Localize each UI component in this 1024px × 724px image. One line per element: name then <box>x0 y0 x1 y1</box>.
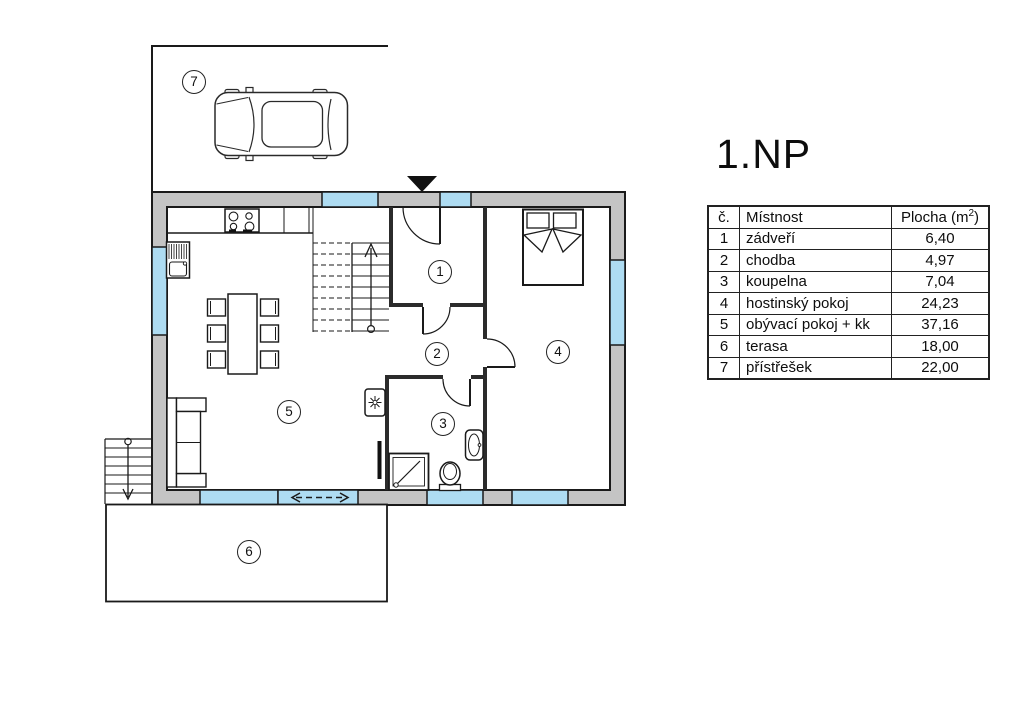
legend-header-row: č. Místnost Plocha (m2) <box>708 206 989 228</box>
cell-room: terasa <box>740 336 892 358</box>
cell-room: koupelna <box>740 271 892 293</box>
table-row: 2 chodba 4,97 <box>708 250 989 272</box>
car-top-view <box>215 88 348 161</box>
cooktop <box>225 209 259 232</box>
window-top-kitchen <box>322 192 378 207</box>
header-area: Plocha (m2) <box>892 206 990 228</box>
pillow <box>554 213 577 228</box>
table-row: 6 terasa 18,00 <box>708 336 989 358</box>
bed <box>523 210 583 286</box>
cell-number: 5 <box>708 314 740 336</box>
window-bottom-bath <box>427 490 483 505</box>
window-bottom-fixed <box>200 490 278 505</box>
entrance-door <box>403 207 440 244</box>
guestroom-door <box>487 339 515 367</box>
cell-room: přístřešek <box>740 357 892 379</box>
stairs-down-arrow <box>123 438 133 499</box>
entrance-marker-icon <box>407 176 437 192</box>
cell-number: 4 <box>708 293 740 315</box>
table-row: 4 hostinský pokoj 24,23 <box>708 293 989 315</box>
staircase <box>313 207 389 332</box>
room-marker-3: 3 <box>431 412 455 436</box>
table-row: 3 koupelna 7,04 <box>708 271 989 293</box>
cell-room: obývací pokoj + kk <box>740 314 892 336</box>
cell-area: 18,00 <box>892 336 990 358</box>
room-marker-2: 2 <box>425 342 449 366</box>
window-right <box>610 260 625 345</box>
table-row: 5 obývací pokoj + kk 37,16 <box>708 314 989 336</box>
shower <box>389 454 429 491</box>
stairs-up-arrow <box>365 244 377 332</box>
cell-area: 4,97 <box>892 250 990 272</box>
cell-area: 6,40 <box>892 228 990 250</box>
window-top-entry <box>440 192 471 207</box>
cell-area: 24,23 <box>892 293 990 315</box>
cell-area: 7,04 <box>892 271 990 293</box>
kitchen-sink <box>167 242 190 278</box>
hallway-door <box>423 307 450 334</box>
cell-room: chodba <box>740 250 892 272</box>
dining-table <box>228 294 257 374</box>
floor-plan-page: 1 2 3 4 5 6 7 1.NP č. Místnost Plocha (m… <box>0 0 1024 724</box>
window-bottom-guestroom <box>512 490 568 505</box>
bathroom-door <box>443 379 470 406</box>
washbasin <box>466 430 484 460</box>
floor-title: 1.NP <box>716 131 811 178</box>
cell-number: 7 <box>708 357 740 379</box>
window-left <box>152 247 167 335</box>
tv <box>378 441 382 479</box>
cell-room: zádveří <box>740 228 892 250</box>
cell-area: 37,16 <box>892 314 990 336</box>
sofa <box>167 398 206 487</box>
header-number: č. <box>708 206 740 228</box>
room-marker-1: 1 <box>428 260 452 284</box>
room-legend-table: č. Místnost Plocha (m2) 1 zádveří 6,40 2… <box>707 205 990 380</box>
cell-area: 22,00 <box>892 357 990 379</box>
table-row: 7 přístřešek 22,00 <box>708 357 989 379</box>
room-marker-6: 6 <box>237 540 261 564</box>
cell-number: 6 <box>708 336 740 358</box>
room-marker-5: 5 <box>277 400 301 424</box>
cell-number: 3 <box>708 271 740 293</box>
room-marker-4: 4 <box>546 340 570 364</box>
exterior-stairs <box>105 438 152 504</box>
toilet <box>440 462 461 491</box>
header-room: Místnost <box>740 206 892 228</box>
cell-number: 1 <box>708 228 740 250</box>
cell-number: 2 <box>708 250 740 272</box>
dining-set <box>208 294 279 374</box>
cell-room: hostinský pokoj <box>740 293 892 315</box>
room-marker-7: 7 <box>182 70 206 94</box>
fireplace-stove <box>365 389 385 416</box>
pillow <box>527 213 549 228</box>
table-row: 1 zádveří 6,40 <box>708 228 989 250</box>
